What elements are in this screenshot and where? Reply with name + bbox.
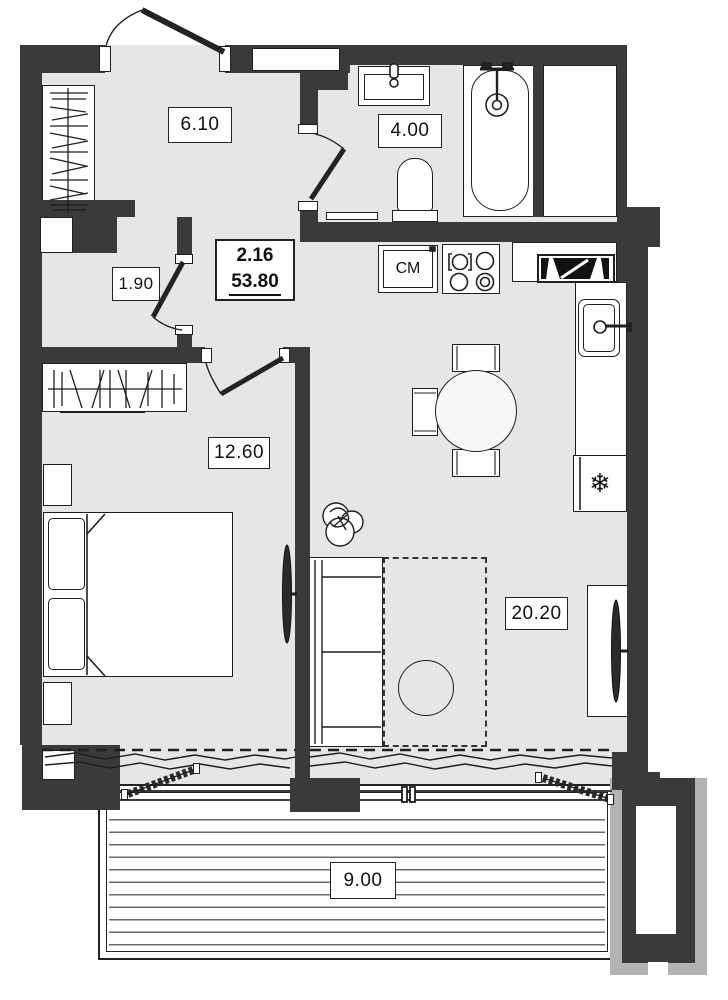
- toilet-tank: [392, 210, 438, 222]
- wall-top-right: [345, 45, 627, 65]
- bedroom-area-value: 12.60: [214, 442, 264, 464]
- bathroom-area-value: 4.00: [391, 120, 430, 142]
- sofa: [305, 557, 383, 747]
- wall-tub-divider: [533, 65, 543, 217]
- dining-chair-bottom: [452, 449, 500, 477]
- pillow-bottom: [48, 598, 85, 670]
- closet-door-jamb-top: [175, 254, 193, 264]
- balcony-door-left-jamb-b: [193, 763, 200, 774]
- label-bathroom-area: 4.00: [378, 114, 442, 148]
- kitchen-wall-niche: [512, 242, 617, 282]
- column-core-top: [612, 778, 695, 790]
- entry-door-jamb-left: [99, 46, 111, 72]
- wall-bath-step: [310, 73, 348, 90]
- floor-entry-opening: [105, 45, 225, 73]
- toilet-bowl: [397, 158, 433, 212]
- closet-wall-niche: [40, 217, 73, 253]
- washing-machine-label: СМ: [396, 260, 421, 278]
- apartment-total-area: 53.80: [229, 271, 281, 296]
- wall-hall-sub: [42, 200, 135, 217]
- nightstand-top: [43, 464, 72, 506]
- wall-bottom-right-stub-a: [612, 752, 648, 774]
- hall-area-value: 6.10: [181, 114, 220, 136]
- bath-sink-basin: [364, 74, 424, 100]
- bedroom-door-jamb-left: [201, 348, 212, 363]
- shaft-right-of-tub: [543, 65, 617, 217]
- balcony-door-left-jamb-a: [121, 789, 128, 800]
- label-living-area: 20.20: [505, 597, 568, 630]
- wall-kitchen-top: [302, 222, 627, 242]
- balcony-door-right-jamb-a: [535, 772, 542, 783]
- hall-wardrobe: [42, 85, 95, 215]
- label-balcony-area: 9.00: [330, 862, 396, 899]
- kitchen-sink-basin: [583, 304, 615, 352]
- bath-door-jamb-top: [298, 124, 318, 134]
- layout-reserved-zone: [383, 557, 487, 747]
- wall-top-niche: [252, 48, 340, 71]
- bottom-left-niche: [42, 750, 75, 780]
- balcony-area-value: 9.00: [344, 870, 383, 892]
- bath-towel-rail: [326, 212, 378, 220]
- dining-chair-top: [452, 344, 500, 372]
- dining-table: [435, 370, 517, 452]
- tv-stand-living: [587, 585, 628, 717]
- wall-bedroom-top-a: [42, 347, 205, 363]
- wall-bottom-mid-block: [290, 778, 360, 812]
- label-bedroom-area: 12.60: [208, 437, 270, 469]
- washing-machine-label-box: СМ: [383, 250, 433, 288]
- column-notch: [648, 962, 668, 975]
- living-area-value: 20.20: [511, 603, 561, 625]
- label-apartment: 2.16 53.80: [215, 239, 295, 301]
- bathtub: [471, 70, 529, 211]
- bath-door-jamb-bottom: [298, 201, 318, 211]
- fridge: ❄: [573, 455, 627, 512]
- floor-plan: СМ ❄ 6.10 4.00 1.90 2.16 53.80 12.60 20.…: [0, 0, 728, 1000]
- closet-door-jamb-bottom: [175, 325, 193, 335]
- label-closet-area: 1.90: [112, 267, 160, 301]
- coffee-table: [398, 660, 454, 716]
- balcony-door-right-jamb-b: [607, 794, 614, 805]
- stove: [442, 244, 500, 294]
- bedroom-door-jamb-right: [279, 348, 290, 363]
- wall-left: [20, 73, 42, 745]
- wall-right: [627, 282, 648, 752]
- entry-door-jamb-right: [219, 46, 231, 72]
- label-hall-area: 6.10: [168, 107, 232, 143]
- apartment-number: 2.16: [237, 245, 274, 267]
- wall-right-mid: [617, 242, 648, 282]
- column-slot: [636, 806, 676, 934]
- bedroom-wardrobe: [42, 363, 187, 412]
- wall-partition-bedroom-living: [295, 363, 310, 782]
- wall-right-top: [617, 65, 627, 207]
- wall-top-left: [20, 45, 105, 73]
- pillow-top: [48, 518, 85, 590]
- wall-closet-block: [73, 217, 117, 253]
- wall-right-step: [617, 207, 660, 247]
- snowflake-icon: ❄: [589, 468, 611, 499]
- nightstand-bottom: [43, 682, 72, 725]
- closet-area-value: 1.90: [118, 274, 153, 294]
